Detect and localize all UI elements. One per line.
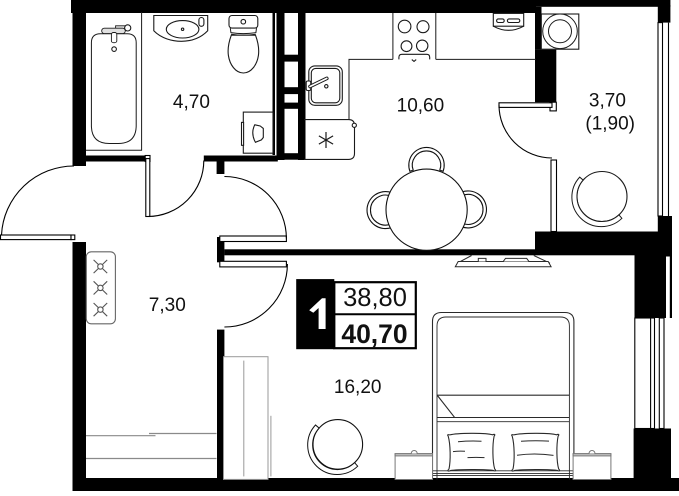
svg-text:3,70: 3,70 (589, 91, 626, 112)
svg-text:10,60: 10,60 (397, 95, 445, 116)
svg-text:16,20: 16,20 (334, 377, 382, 398)
svg-text:4,70: 4,70 (173, 92, 210, 113)
svg-text:(1,90): (1,90) (585, 114, 635, 135)
svg-text:40,70: 40,70 (341, 319, 407, 349)
svg-text:7,30: 7,30 (149, 295, 186, 316)
svg-text:38,80: 38,80 (343, 284, 407, 312)
